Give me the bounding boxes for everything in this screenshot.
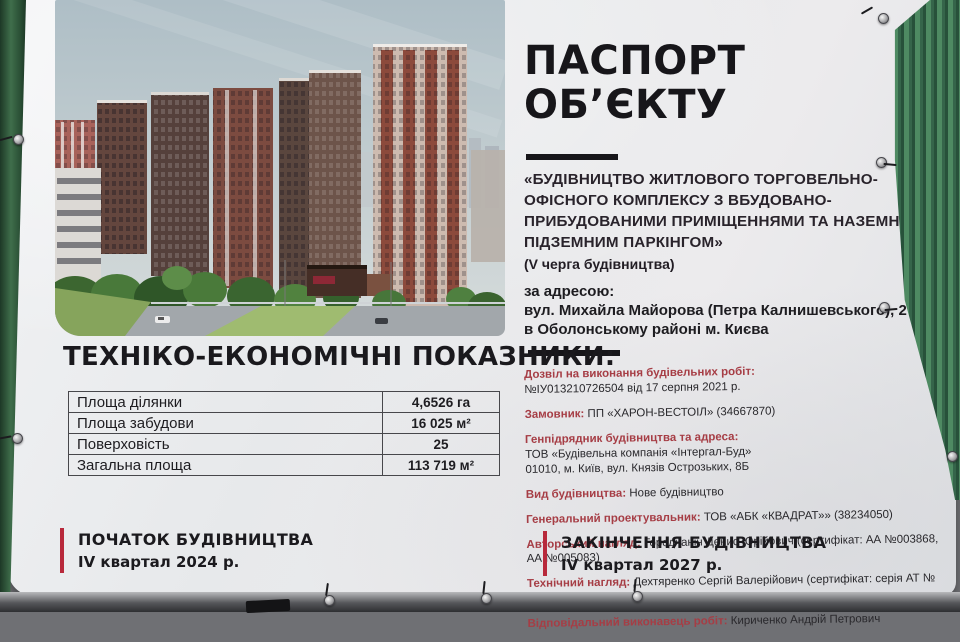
row-value: 4,6526 га xyxy=(383,392,500,413)
table-row: Поверховість 25 xyxy=(69,434,500,455)
table-row: Площа ділянки 4,6526 га xyxy=(69,392,500,413)
end-title: ЗАКІНЧЕННЯ БУДІВНИЦТВА xyxy=(561,533,826,552)
indicators-table: Площа ділянки 4,6526 га Площа забудови 1… xyxy=(68,391,500,476)
title-line-2: ОБ’ЄКТУ xyxy=(524,83,948,127)
tower-right-distant xyxy=(471,150,505,262)
ground xyxy=(0,592,960,612)
construction-phase: (V черга будівництва) xyxy=(524,256,948,272)
address-intro: за адресою: xyxy=(524,283,948,300)
object-description: «БУДІВНИЦТВО ЖИТЛОВОГО ТОРГОВЕЛЬНО-ОФІСН… xyxy=(524,169,948,254)
detail-contractor: Генпідрядник будівництва та адреса: ТОВ … xyxy=(525,427,950,478)
grommet xyxy=(481,593,492,604)
tower-right-large xyxy=(373,44,467,306)
construction-rendering xyxy=(55,0,505,336)
grommet xyxy=(878,13,889,24)
tower-mid-1 xyxy=(151,92,209,276)
indicators-title: ТЕХНІКО-ЕКОНОМІЧНІ ПОКАЗНИКИ: xyxy=(63,342,615,372)
row-value: 16 025 м² xyxy=(383,413,500,434)
tower-mid-4 xyxy=(309,70,361,298)
grommet xyxy=(879,302,890,313)
table-row: Площа забудови 16 025 м² xyxy=(69,413,500,434)
banner-title: ПАСПОРТОБ’ЄКТУ xyxy=(524,39,948,127)
start-date: IV квартал 2024 р. xyxy=(78,553,313,571)
row-value: 25 xyxy=(383,434,500,455)
construction-start-block: ПОЧАТОК БУДІВНИЦТВА IV квартал 2024 р. xyxy=(60,528,313,573)
grommet xyxy=(12,433,23,444)
start-title: ПОЧАТОК БУДІВНИЦТВА xyxy=(78,530,313,549)
row-label: Загальна площа xyxy=(69,455,383,476)
address-line-2: в Оболонському районі м. Києва xyxy=(524,321,948,338)
photo-background: ПАСПОРТОБ’ЄКТУ «БУДІВНИЦТВО ЖИТЛОВОГО ТО… xyxy=(0,0,960,612)
tower-left-dark xyxy=(97,100,147,254)
row-label: Площа ділянки xyxy=(69,392,383,413)
table-row: Загальна площа 113 719 м² xyxy=(69,455,500,476)
detail-type: Вид будівництва: Нове будівництво xyxy=(526,481,950,502)
divider-bar-top xyxy=(526,154,618,160)
end-date: IV квартал 2027 р. xyxy=(561,556,826,574)
grommet xyxy=(947,451,958,462)
ground-object xyxy=(246,599,291,613)
title-line-1: ПАСПОРТ xyxy=(524,39,948,83)
row-value: 113 719 м² xyxy=(383,455,500,476)
construction-end-block: ЗАКІНЧЕННЯ БУДІВНИЦТВА IV квартал 2027 р… xyxy=(543,531,826,576)
detail-responsible-executor: Відповідальний виконавець робіт: Киричен… xyxy=(527,611,951,632)
detail-client: Замовник: ПП «ХАРОН-ВЕСТОІЛ» (34667870) xyxy=(525,402,949,423)
grommet xyxy=(324,595,335,606)
grommet xyxy=(13,134,24,145)
row-label: Площа забудови xyxy=(69,413,383,434)
row-label: Поверховість xyxy=(69,434,383,455)
grommet xyxy=(632,591,643,602)
car xyxy=(155,316,170,323)
detail-designer: Генеральний проектувальник: ТОВ «АБК «КВ… xyxy=(526,506,950,527)
tower-mid-2 xyxy=(213,88,273,288)
car-2 xyxy=(375,318,388,324)
